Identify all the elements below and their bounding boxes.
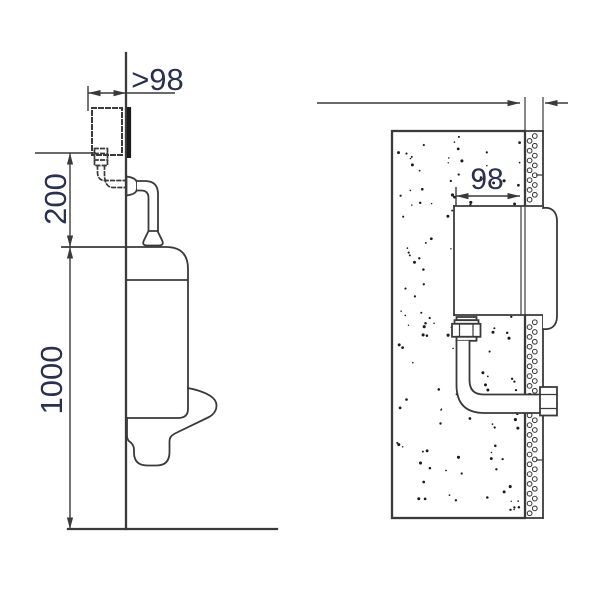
dimension-valve-height: 200: [35, 153, 96, 247]
flush-pipe: [137, 181, 158, 231]
dimension-wall-offset: >98: [88, 62, 184, 111]
cover-plate: [543, 208, 557, 329]
dim-label-rim-height: 1000: [34, 346, 69, 415]
side-view: >98 200 1000: [34, 53, 277, 529]
dimension-finish-thickness: [317, 100, 568, 106]
valve-outlet-fitting: [95, 149, 108, 166]
escutcheon: [127, 177, 138, 196]
actuator-plate: [127, 107, 131, 158]
dimension-rim-height: 1000: [34, 247, 73, 529]
finish-layer-hatch: [527, 134, 537, 516]
dim-label-wall-offset: >98: [131, 62, 184, 97]
spreader: [143, 231, 163, 246]
urinal-outline: [62, 247, 216, 466]
section-view: 98: [317, 97, 568, 518]
dim-label-valve-height: 200: [38, 173, 73, 225]
in-wall-pipe-dashed: [98, 166, 126, 188]
wall-outlet-fitting: [540, 387, 557, 416]
recess-box: [454, 206, 543, 315]
supply-connection-nut: [452, 317, 481, 341]
dim-label-recess-width: 98: [470, 163, 503, 196]
installation-diagram: >98 200 1000: [0, 0, 600, 600]
drawing-canvas: >98 200 1000: [0, 0, 600, 600]
